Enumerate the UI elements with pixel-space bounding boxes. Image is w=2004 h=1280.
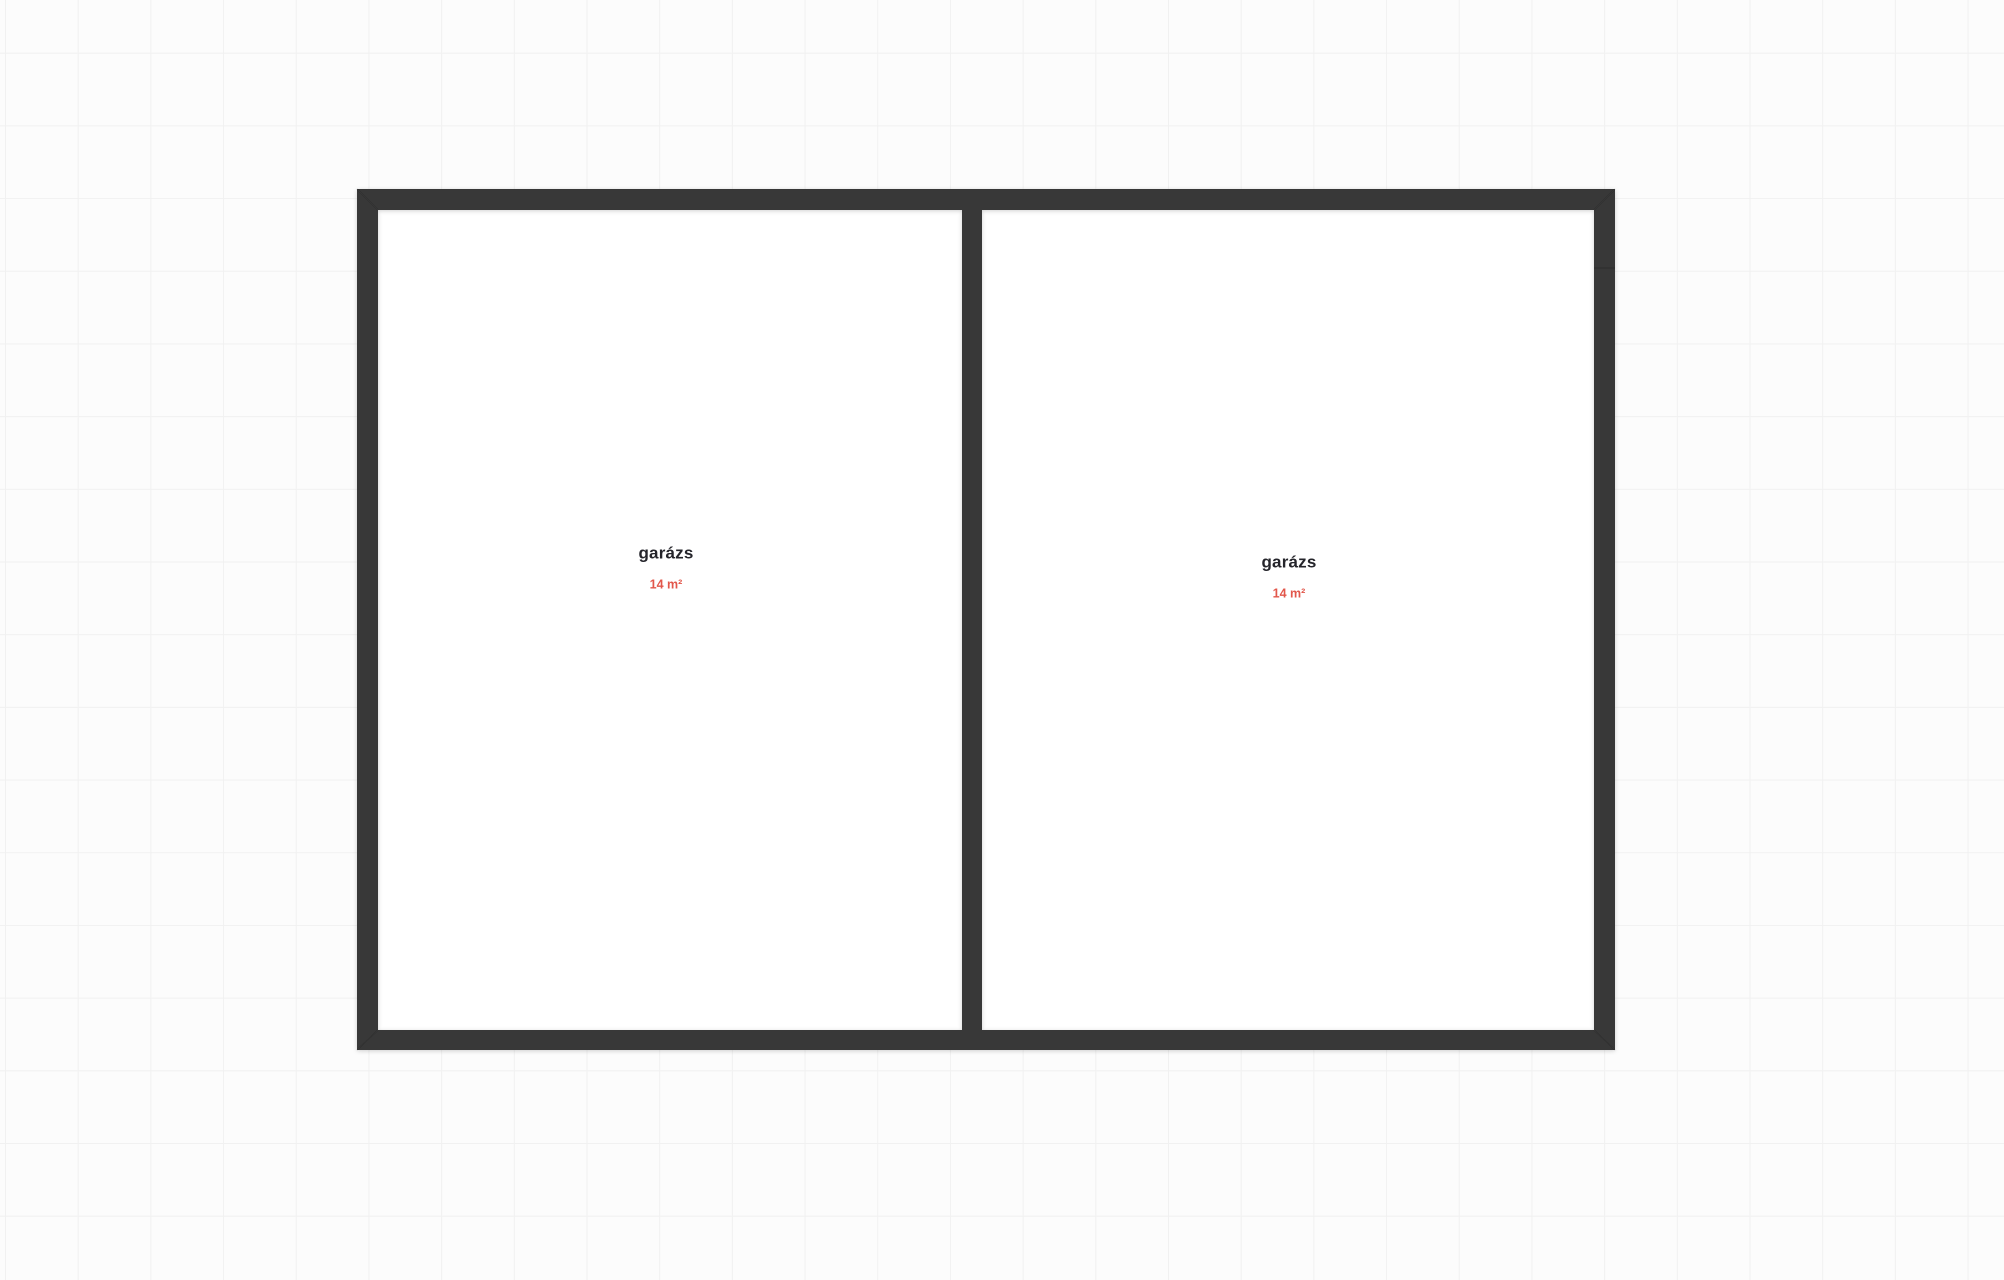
wall-top[interactable] [357,189,1615,210]
floorplan-drawing [0,0,2004,1280]
room-label-right[interactable]: garázs 14 m² [1261,553,1316,602]
wall-right[interactable] [1594,189,1615,1050]
room-area: 14 m² [638,578,693,593]
room-label-left[interactable]: garázs 14 m² [638,544,693,593]
room-name: garázs [638,544,693,564]
room-area: 14 m² [1261,587,1316,602]
room-name: garázs [1261,553,1316,573]
floorplan-canvas[interactable]: garázs 14 m² garázs 14 m² [0,0,2004,1280]
wall-divider[interactable] [962,210,982,1030]
rooms [378,210,1594,1030]
room-garage-right[interactable] [982,210,1594,1030]
wall-bottom[interactable] [357,1030,1615,1050]
room-garage-left[interactable] [378,210,962,1030]
wall-left[interactable] [357,189,378,1050]
